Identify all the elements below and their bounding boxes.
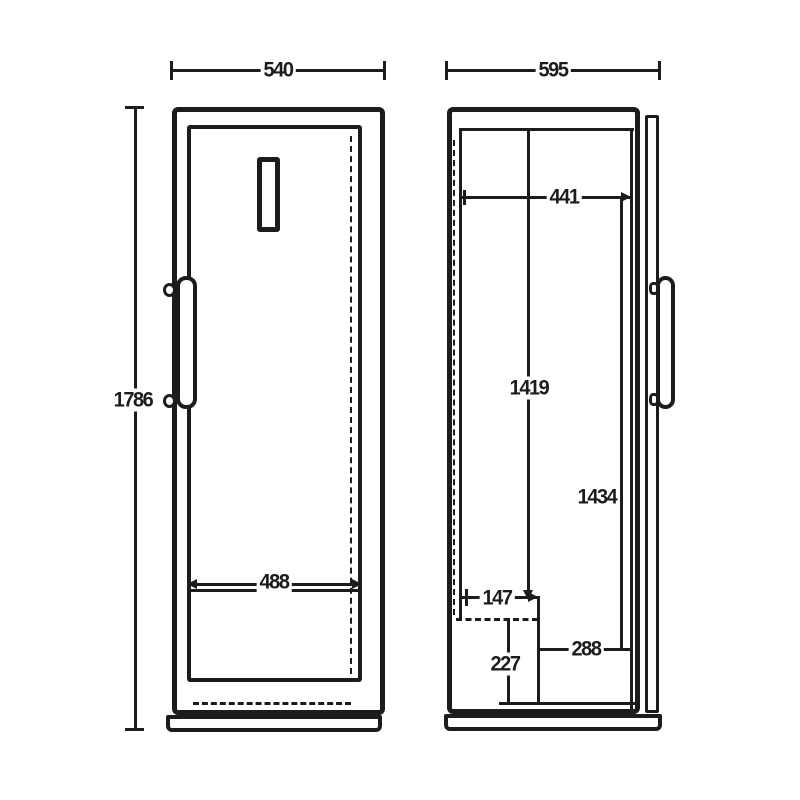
side-recess-top-dashed-line: [456, 618, 538, 621]
front-door-handle: [176, 276, 197, 409]
side-depth-dimension-tick-right: [658, 61, 661, 80]
side-handle-mount-top: [649, 282, 659, 295]
side-recess-width-label: 288: [569, 638, 604, 661]
front-width-dimension-tick-left: [170, 61, 173, 80]
front-base-plinth: [166, 715, 382, 732]
front-width-dimension-tick-right: [383, 61, 386, 80]
side-depth-dimension-tick-left: [445, 61, 448, 80]
side-door-handle: [656, 276, 675, 409]
side-top-offset-tick-left: [463, 190, 466, 205]
front-door-width-arrow-right: [352, 579, 362, 589]
side-mid-height-dimension-line: [527, 131, 530, 597]
side-recess-height-label: 227: [488, 653, 523, 676]
front-width-label: 540: [261, 59, 296, 82]
side-interior-back-dashed-line: [453, 140, 455, 615]
side-door-slab: [645, 115, 659, 713]
side-interior-back-line: [459, 128, 462, 620]
front-door-width-label: 488: [257, 571, 292, 594]
side-mid-height-label: 1419: [507, 377, 551, 400]
appliance-dimension-diagram: 540 1786 488 595 1419 441 1434: [0, 0, 800, 800]
front-height-dimension-line: [134, 107, 137, 731]
side-handle-mount-bottom: [649, 393, 659, 406]
front-height-label: 1786: [111, 389, 155, 412]
front-door-bottom-dashed-line: [193, 702, 351, 705]
front-height-dimension-tick-top: [125, 106, 144, 109]
side-recess-depth-arrow-right: [528, 592, 538, 602]
front-handle-mount-bottom: [163, 394, 176, 408]
side-top-offset-dimension-line: [460, 196, 631, 199]
side-recess-bottom-line: [499, 702, 637, 705]
side-depth-label: 595: [536, 59, 571, 82]
side-lower-height-dimension-line: [620, 197, 623, 650]
side-recess-depth-label: 147: [480, 587, 515, 610]
front-display-panel: [257, 157, 280, 232]
front-door-seal-dashed-line: [350, 136, 352, 674]
side-top-offset-arrow-right: [621, 192, 631, 202]
front-door-width-arrow-left: [187, 579, 197, 589]
side-interior-top-line: [460, 128, 634, 131]
side-top-offset-label: 441: [547, 186, 582, 209]
side-recess-depth-tick-left: [465, 589, 468, 606]
side-interior-front-line: [630, 128, 633, 713]
front-handle-mount-top: [163, 283, 176, 297]
front-height-dimension-tick-bottom: [125, 728, 144, 731]
side-lower-height-label: 1434: [575, 486, 619, 509]
side-base-plinth: [444, 714, 662, 731]
